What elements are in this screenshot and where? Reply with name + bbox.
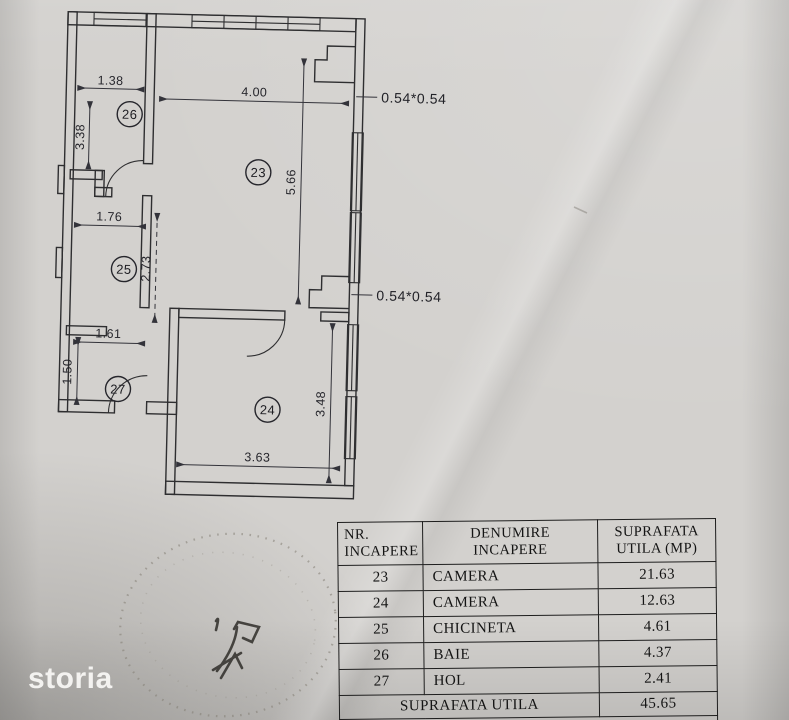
table-row: 24 CAMERA 12.63: [338, 588, 716, 618]
room-areas-table: NR. INCAPERE DENUMIRE INCAPERE SUPRAFATA…: [337, 518, 718, 720]
storia-watermark: storia: [28, 662, 113, 696]
dim-w23: 4.00: [241, 85, 267, 100]
room-number-cell: 27: [339, 669, 424, 696]
table-row: 23 CAMERA 21.63: [338, 562, 716, 592]
room-area-cell: 21.63: [598, 562, 716, 589]
room-areas-table-wrap: NR. INCAPERE DENUMIRE INCAPERE SUPRAFATA…: [337, 518, 718, 720]
floor-plan-photo: 1.38 3.38 4.00 5.66 1.76 2.73 1.61 1.50 …: [0, 0, 789, 720]
floor-plan-drawing: 1.38 3.38 4.00 5.66 1.76 2.73 1.61 1.50 …: [40, 0, 483, 530]
table-row: 26 BAIE 4.37: [339, 640, 717, 670]
dim-h25: 2.73: [139, 256, 154, 282]
room-name-cell: BAIE: [424, 641, 599, 669]
pillar-size-label-bottom: 0.54*0.54: [376, 287, 442, 305]
room-badge-23: 23: [246, 160, 272, 186]
dim-w24: 3.63: [244, 450, 270, 465]
handwritten-signature: [213, 619, 259, 678]
round-stamp-imprint: [110, 522, 347, 720]
pillar-top: [315, 46, 356, 83]
header-suprafata-utila: SUPRAFATA UTILA (MP): [597, 519, 715, 563]
dim-w27: 1.61: [95, 326, 121, 341]
room-name-cell: HOL: [424, 667, 599, 695]
pillar-bottom: [309, 276, 350, 309]
room-number-cell: 23: [338, 565, 423, 592]
svg-text:23: 23: [250, 165, 266, 180]
room-badge-26: 26: [117, 101, 143, 127]
room-name-cell: CHICINETA: [423, 615, 598, 643]
room-name-cell: CAMERA: [423, 589, 598, 617]
table-row: 25 CHICINETA 4.61: [339, 614, 717, 644]
dim-w26: 1.38: [97, 73, 123, 88]
table-header-row: NR. INCAPERE DENUMIRE INCAPERE SUPRAFATA…: [338, 519, 716, 566]
header-denumire-incapere: DENUMIRE INCAPERE: [423, 520, 598, 565]
room-number-cell: 26: [339, 643, 424, 670]
svg-text:24: 24: [260, 402, 276, 417]
room-badge-27: 27: [105, 376, 131, 402]
svg-text:26: 26: [122, 107, 138, 122]
room-area-cell: 4.61: [598, 614, 716, 641]
dim-h23: 5.66: [284, 169, 299, 195]
faint-pen-tick: [574, 207, 587, 213]
dim-w25: 1.76: [96, 209, 122, 224]
room-name-cell: CAMERA: [423, 563, 598, 591]
total-value-cell: 45.65: [599, 692, 717, 717]
table-row: 27 HOL 2.41: [339, 666, 717, 696]
dim-h24: 3.48: [313, 391, 328, 417]
room-number-cell: 25: [339, 617, 424, 644]
svg-text:25: 25: [116, 262, 132, 277]
header-nr-incapere: NR. INCAPERE: [338, 522, 423, 566]
room-number-badges: 23 24 25 26 27: [105, 101, 288, 422]
room-number-cell: 24: [338, 591, 423, 618]
svg-text:27: 27: [110, 381, 126, 396]
room-badge-25: 25: [111, 256, 137, 282]
room-badge-24: 24: [255, 397, 281, 423]
pillar-size-label-top: 0.54*0.54: [381, 89, 447, 107]
room-area-cell: 4.37: [599, 640, 717, 667]
dim-h26: 3.38: [73, 124, 88, 150]
room-area-cell: 2.41: [599, 666, 717, 693]
room-area-cell: 12.63: [598, 588, 716, 615]
dim-h27: 1.50: [60, 359, 75, 385]
door-arcs: [100, 160, 288, 417]
total-label-cell: SUPRAFATA UTILA: [339, 693, 599, 720]
